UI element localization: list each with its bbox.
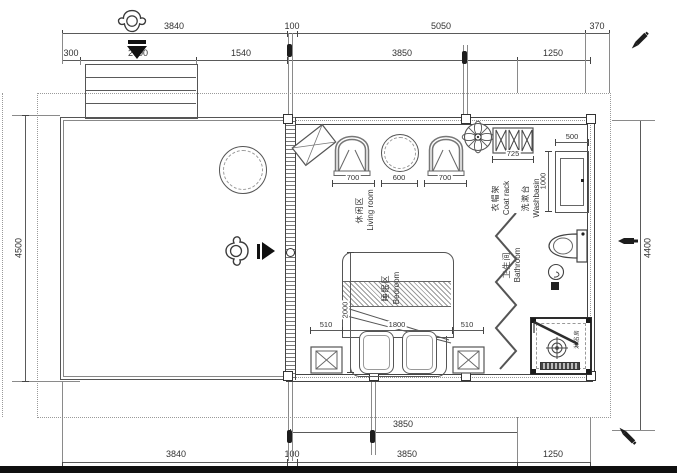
extension-line (585, 33, 586, 93)
bedroom-label: 睡眠区 Bedroom (381, 272, 403, 304)
survey-pin-icon (287, 430, 292, 443)
shower-threshold (540, 362, 580, 370)
property-line (2, 93, 3, 417)
dim-tick (466, 180, 467, 187)
dim-label: 4500 (15, 237, 24, 259)
washbasin-tap (581, 179, 584, 182)
step-tread (85, 77, 196, 78)
extension-line (609, 33, 610, 93)
dim-tick (545, 211, 552, 212)
extension-line (62, 33, 63, 64)
washbasin-sink (560, 158, 584, 206)
bedroom-label-en: Bedroom (392, 272, 403, 304)
dim-tick (347, 252, 354, 253)
dim-tick (347, 372, 354, 373)
dim-line (640, 120, 641, 430)
coat-rack-label-zh: 衣帽架 (491, 181, 502, 215)
dim-label: 1250 (542, 49, 564, 58)
extension-line (62, 381, 63, 462)
living-room-label-zh: 休闲区 (355, 189, 366, 230)
dim-label: 300 (62, 49, 79, 58)
dim-tick (424, 180, 425, 187)
survey-pin-icon (370, 430, 375, 443)
extension-line (12, 115, 60, 116)
dim-line (25, 115, 26, 381)
valve-box (551, 282, 559, 290)
washbasin-label-en: Washbasin (532, 178, 543, 217)
dim-tick (588, 139, 589, 146)
extension-line (80, 60, 81, 65)
dim-tick (590, 57, 591, 64)
pen-marker-icon (624, 28, 652, 56)
dim-line (548, 151, 549, 211)
step-tread (85, 103, 196, 104)
dim-line (555, 142, 588, 143)
coat-rack-label: 衣帽架 Coat rack (491, 181, 513, 215)
dim-line (381, 183, 417, 184)
entry-arrow-right-icon (262, 242, 275, 260)
dim-label: 725 (506, 150, 521, 158)
bench-cushion (359, 331, 394, 374)
pen-marker-icon (612, 420, 640, 448)
dim-label: 1800 (388, 321, 407, 329)
dim-tick (22, 381, 29, 382)
entrance-steps (85, 64, 198, 119)
person-top-icon (112, 3, 152, 41)
dim-label: 500 (565, 133, 580, 141)
dim-label: 370 (588, 22, 605, 31)
extension-line (612, 120, 655, 121)
ceiling-fan-icon (460, 119, 496, 155)
dim-label: 3850 (396, 450, 418, 459)
dim-label: 700 (438, 174, 453, 182)
dim-label: 700 (346, 174, 361, 182)
dim-label: 3840 (165, 450, 187, 459)
extension-line (517, 417, 518, 462)
shower-label: 淋浴房 (575, 329, 582, 349)
armchair (330, 127, 374, 177)
dim-label: 4400 (644, 237, 653, 259)
dim-label: 5050 (430, 22, 452, 31)
dim-label: 3850 (391, 49, 413, 58)
dim-tick (332, 180, 333, 187)
wall-post (283, 371, 293, 381)
sheet-edge (0, 466, 677, 473)
dim-tick (555, 139, 556, 146)
dim-tick (374, 180, 375, 187)
floor-plan-drawing: 3840 100 5050 370 300 2000 1540 3850 125… (0, 0, 677, 473)
person-top-icon (216, 231, 256, 271)
dim-label: 1540 (230, 49, 252, 58)
dim-tick (297, 459, 298, 466)
dim-tick (417, 180, 418, 187)
bedroom-label-zh: 睡眠区 (381, 272, 392, 304)
dim-tick (452, 327, 453, 334)
survey-pin-icon (287, 44, 292, 57)
washbasin-label-zh: 洗漱台 (521, 178, 532, 217)
nightstand (452, 346, 485, 374)
toilet (543, 228, 589, 266)
living-room-label-en: Living room (366, 189, 377, 230)
extension-line (590, 417, 591, 462)
entry-arrow-bar (128, 40, 146, 44)
shower-label-zh: 淋浴房 (575, 329, 582, 349)
step-tread (85, 90, 196, 91)
coat-rack-label-en: Coat rack (502, 181, 513, 215)
dim-line (332, 183, 374, 184)
living-table-inner-ring (384, 137, 416, 169)
survey-pin-icon (616, 236, 638, 246)
wall-post (586, 114, 596, 124)
dim-line (310, 330, 483, 331)
dim-label: 100 (283, 22, 300, 31)
dim-label: 600 (392, 174, 407, 182)
dim-line (424, 183, 466, 184)
grid-line (371, 380, 376, 455)
entry-arrow-bar (257, 244, 260, 259)
grid-line (288, 380, 293, 461)
survey-pin-icon (462, 51, 467, 64)
dim-line (492, 159, 533, 160)
dim-label: 3850 (392, 420, 414, 429)
dim-label: 510 (460, 321, 475, 329)
dim-line (62, 60, 590, 61)
dim-tick (381, 180, 382, 187)
dim-label: 2000 (341, 301, 349, 320)
dim-tick (22, 115, 29, 116)
dim-line (290, 432, 517, 433)
folding-partition (492, 213, 520, 371)
dim-tick (342, 327, 343, 334)
dim-label: 1250 (542, 450, 564, 459)
living-room-label: 休闲区 Living room (355, 189, 377, 230)
terrace-table-inner-ring (223, 150, 263, 190)
dim-tick (545, 151, 552, 152)
dim-label: 510 (319, 321, 334, 329)
extension-line (517, 60, 518, 93)
floor-drain-icon (547, 263, 565, 281)
dim-tick (297, 30, 298, 37)
nightstand (310, 346, 343, 374)
bench-cushion (402, 331, 437, 374)
dim-line (350, 252, 351, 372)
dim-label: 3840 (163, 22, 185, 31)
washbasin-label: 洗漱台 Washbasin (521, 178, 543, 217)
dim-tick (492, 156, 493, 163)
dim-tick (310, 327, 311, 334)
entry-arrow-down-icon (127, 46, 147, 59)
dim-tick (533, 156, 534, 163)
door-knob (286, 248, 295, 257)
dim-line (62, 462, 590, 463)
dim-tick (483, 327, 484, 334)
